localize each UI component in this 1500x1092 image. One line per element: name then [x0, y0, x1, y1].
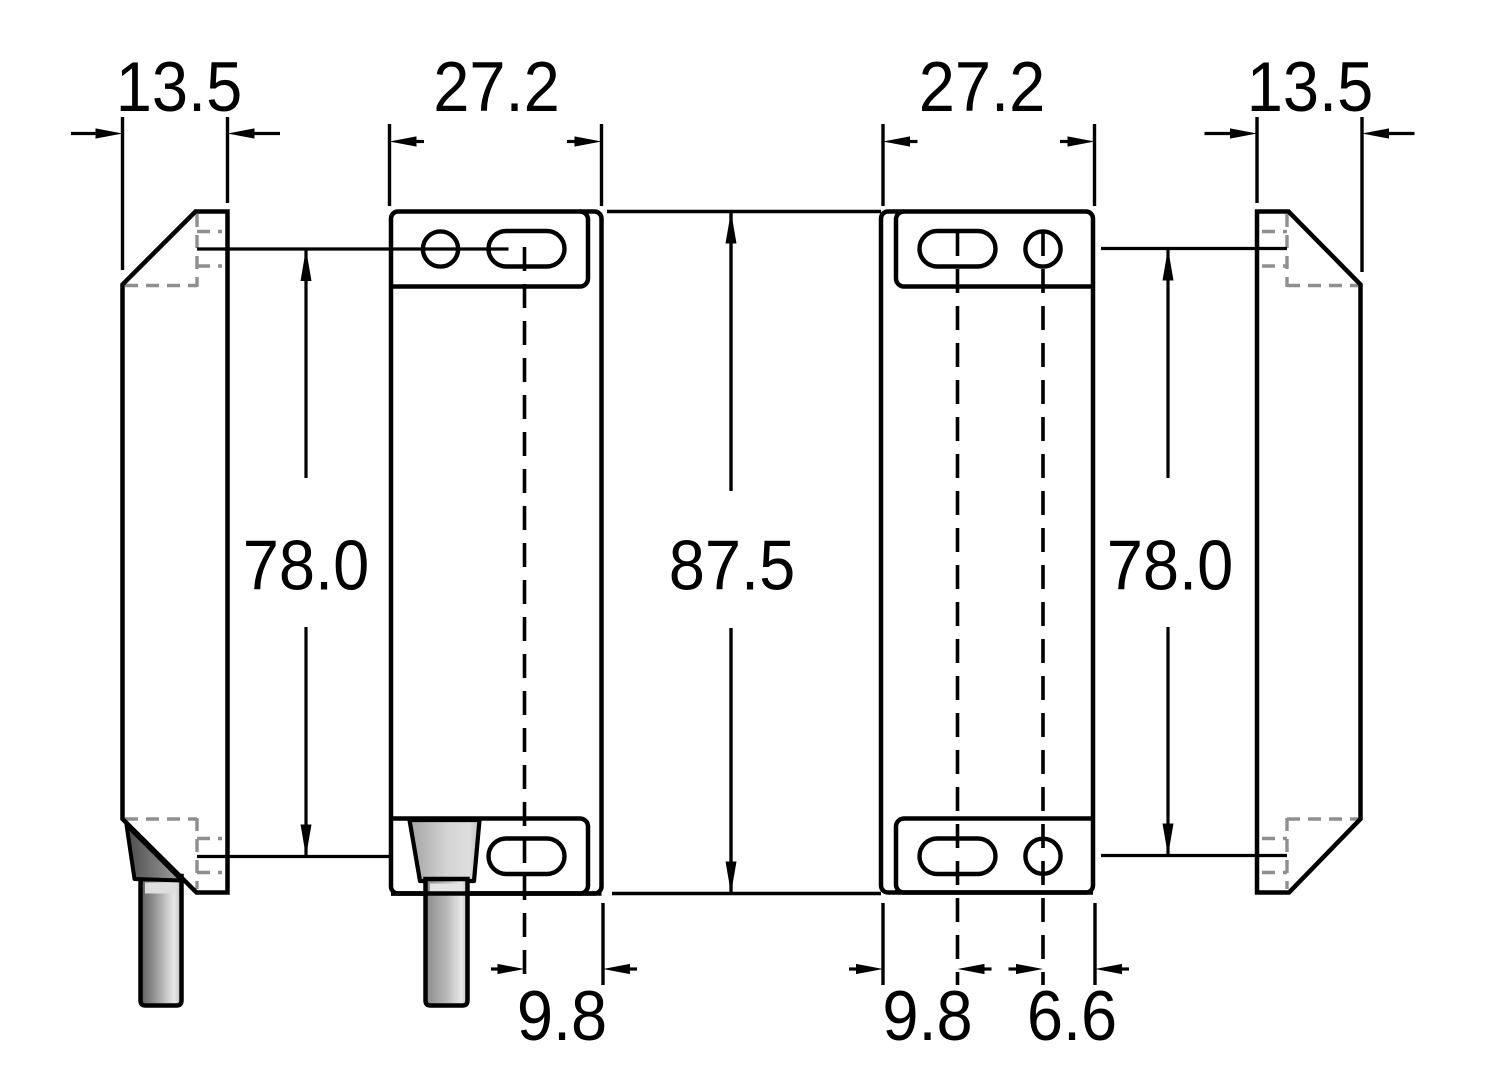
- svg-text:78.0: 78.0: [1107, 527, 1233, 605]
- svg-text:13.5: 13.5: [116, 49, 242, 127]
- svg-text:6.6: 6.6: [1027, 978, 1117, 1056]
- svg-text:27.2: 27.2: [433, 49, 559, 127]
- svg-text:87.5: 87.5: [669, 527, 795, 605]
- svg-text:78.0: 78.0: [243, 527, 369, 605]
- svg-text:9.8: 9.8: [882, 978, 972, 1056]
- svg-text:9.8: 9.8: [517, 978, 607, 1056]
- svg-text:27.2: 27.2: [919, 49, 1045, 127]
- svg-text:13.5: 13.5: [1247, 49, 1373, 127]
